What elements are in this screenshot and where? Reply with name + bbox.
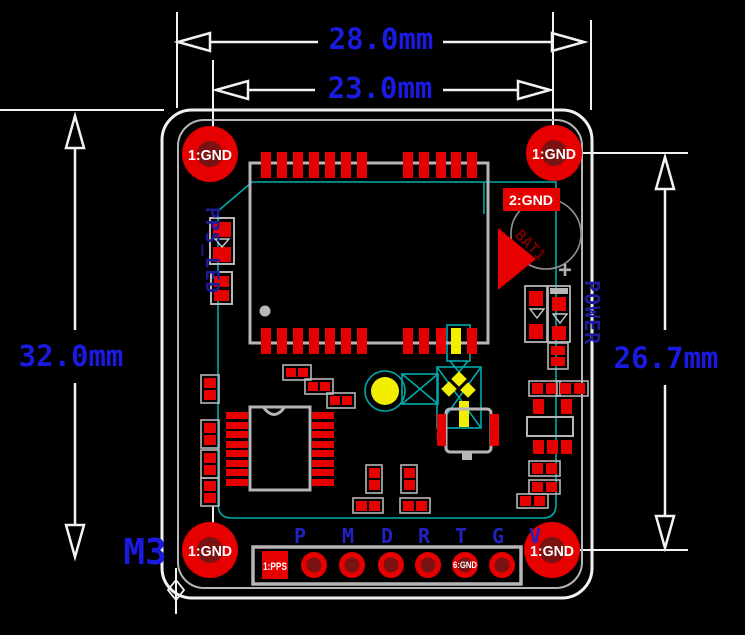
gps-module-top-pads <box>261 152 477 178</box>
pin-label-R: R <box>418 524 431 548</box>
mounting-hole-label: 1:GND <box>188 543 232 560</box>
gps-module-outline <box>250 163 488 343</box>
bottom-passives <box>353 465 430 513</box>
diode-symbol <box>530 309 544 318</box>
regulator-outline <box>527 417 573 436</box>
left-passives <box>201 375 219 506</box>
bottom-connector: 1:PPS 6:GND P M D R T G V <box>253 524 541 584</box>
arrow-down <box>656 516 674 548</box>
dim-hole-span-width: 23.0mm <box>216 71 550 105</box>
dim-board-height-text: 32.0mm <box>19 339 124 373</box>
dim-board-width-text: 28.0mm <box>329 22 434 56</box>
rf-pad-diamond <box>451 371 467 387</box>
ic-right-pads <box>312 412 334 486</box>
arrow-down <box>66 525 84 557</box>
pin-label-M: M <box>342 524 354 548</box>
rf-via <box>371 377 399 405</box>
arrow-up <box>66 116 84 148</box>
dimension-annotations: 28.0mm 23.0mm 32.0mm 26.7mm <box>0 12 718 614</box>
rf-feed-pad <box>459 401 469 427</box>
battery-plus-sign: + <box>558 258 571 283</box>
dim-board-height: 32.0mm <box>19 116 124 557</box>
connector-pin-labels: P M D R T G V <box>294 524 541 548</box>
pin1-marker-dot <box>260 306 271 317</box>
pad1-pps-label: 1:PPS <box>263 561 287 573</box>
mounting-hole-label: 1:GND <box>188 147 232 164</box>
gps-module-bottom-pads <box>261 328 477 354</box>
mounting-hole-label: 1:GND <box>532 146 576 163</box>
pps-led-label: PPS_LED <box>201 207 223 294</box>
arrow-right <box>552 33 584 51</box>
arrow-right <box>518 81 550 99</box>
pad6-gnd-label: 6:GND <box>453 560 477 570</box>
dim-board-width: 28.0mm <box>178 22 584 56</box>
pin-label-G: G <box>492 524 504 548</box>
m3-label: M3 <box>123 532 166 573</box>
power-label: POWER <box>580 280 604 345</box>
right-components <box>517 286 588 508</box>
rf-pad-diamond <box>441 381 457 397</box>
board-outline <box>162 110 592 598</box>
mounting-hole-top-left: 1:GND <box>182 126 238 182</box>
rf-highlight-pad <box>451 328 461 354</box>
gnd2-label: 2:GND <box>509 192 553 208</box>
pin-label-D: D <box>381 524 393 548</box>
connector-round-pads <box>301 552 515 578</box>
arrow-left <box>178 33 210 51</box>
dim-hole-span-height: 26.7mm <box>614 157 719 548</box>
pcb-drawing: 28.0mm 23.0mm 32.0mm 26.7mm <box>0 0 745 635</box>
pin-label-V: V <box>529 524 541 548</box>
pin-label-P: P <box>294 524 306 548</box>
battery-area: BAT1 2:GND + <box>498 188 581 290</box>
pcb-drawing-canvas: 28.0mm 23.0mm 32.0mm 26.7mm <box>0 0 745 635</box>
arrow-up <box>656 157 674 189</box>
staggered-resistors <box>283 365 355 408</box>
ic-left-pads <box>226 412 248 486</box>
mounting-hole-top-right: 1:GND <box>526 125 582 181</box>
board-edge <box>162 110 592 598</box>
ic-notch <box>264 408 284 415</box>
diode-symbol <box>553 314 567 323</box>
dim-hole-span-height-text: 26.7mm <box>614 341 719 375</box>
pin-label-T: T <box>455 524 467 548</box>
mounting-hole-bottom-left: 1:GND <box>182 522 238 578</box>
ic-chip <box>226 407 334 490</box>
dim-hole-span-width-text: 23.0mm <box>328 71 433 105</box>
arrow-left <box>216 81 248 99</box>
rf-pad-diamond <box>460 382 476 398</box>
